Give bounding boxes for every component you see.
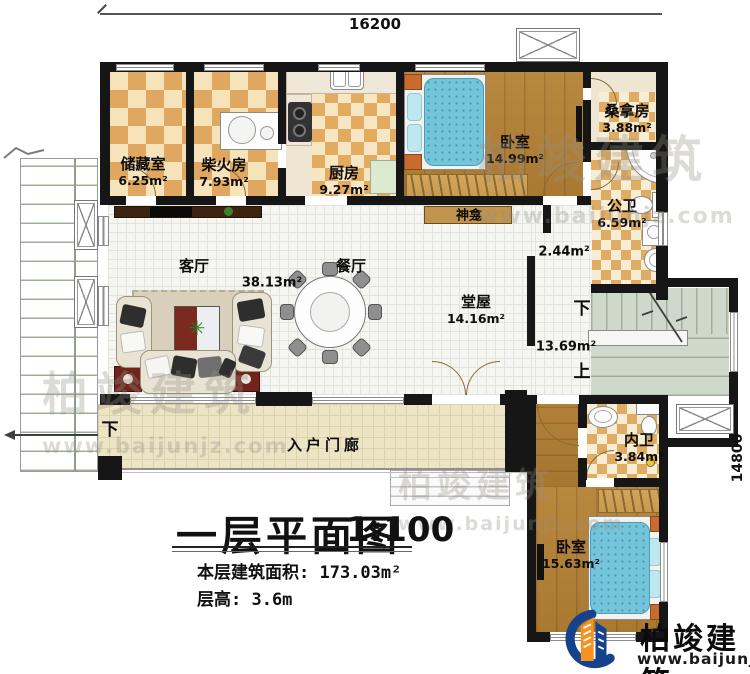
stair-down-label: 下	[574, 299, 591, 319]
stove-burner-2	[293, 124, 306, 137]
title-underline	[172, 546, 412, 548]
porch-arrow-line	[12, 434, 98, 436]
bed-top-pillow-1	[407, 93, 422, 121]
room-label-living: 客厅	[179, 258, 209, 276]
floor-area-line: 本层建筑面积: 173.03m²	[197, 558, 401, 583]
pillow-white-1	[120, 330, 147, 353]
corridor-area-label: 2.44m²	[538, 244, 589, 259]
entry-steps	[390, 470, 510, 506]
floor-height-line: 层高: 3.6m	[197, 585, 292, 610]
side-table-right-top	[241, 374, 251, 384]
wall-segment	[100, 394, 130, 405]
firewood-stove-pot	[228, 116, 256, 144]
stair-up-label: 上	[574, 362, 591, 382]
porch-label: 入户门廊	[287, 437, 363, 455]
room-label-bedroom-top: 卧室14.99m²	[486, 134, 544, 166]
side-table-left-top	[123, 374, 133, 384]
wall-segment	[578, 404, 587, 428]
wall-segment	[583, 100, 591, 162]
wall-segment	[591, 142, 656, 150]
pillow-white-2	[237, 324, 266, 347]
wall-segment	[347, 196, 543, 205]
cushion-2	[170, 355, 197, 379]
dining-chair-e	[368, 304, 382, 320]
chimney-flue-right	[676, 404, 734, 434]
window	[204, 64, 264, 71]
wall-segment	[505, 390, 527, 472]
room-label-firewood: 柴火房7.93m²	[199, 157, 248, 189]
wall-segment	[246, 196, 305, 205]
window	[98, 286, 109, 326]
window	[660, 542, 668, 602]
bed-top-pillow-2	[407, 124, 422, 152]
brand-url: www.baijunjz.com	[637, 650, 750, 668]
chimney-flue-top	[516, 28, 580, 62]
wall-segment	[664, 438, 738, 447]
column-left-2	[74, 276, 98, 328]
top-dimension-label: 16200	[330, 15, 420, 33]
wardrobe-bottom	[598, 489, 668, 513]
wall-segment	[527, 256, 535, 346]
cushion-3	[197, 356, 223, 378]
wall-segment	[656, 62, 668, 212]
wall-segment	[656, 278, 738, 287]
ground-break-mark	[2, 144, 48, 162]
window	[312, 397, 404, 404]
stove-burner-1	[293, 107, 306, 120]
shrine-label: 神龛	[456, 208, 482, 223]
room-label-sauna: 桑拿房3.88m²	[602, 103, 651, 135]
firewood-stove-pot-small	[260, 126, 274, 140]
wall-segment	[578, 478, 586, 487]
floor-plan-page: 16200 14800	[0, 0, 750, 674]
plan-scale: 1:100	[346, 510, 454, 550]
dining-chair-s	[322, 350, 338, 364]
room-label-storage: 储藏室6.25m²	[118, 156, 167, 188]
wall-segment	[404, 394, 432, 405]
room-label-public-bath: 公卫6.59m²	[597, 198, 646, 230]
dining-table-inner	[310, 292, 350, 332]
wall-segment	[583, 72, 591, 88]
title-underline-2	[172, 551, 412, 552]
bed-top-mattress	[424, 78, 484, 166]
window	[130, 397, 256, 404]
wardrobe-top	[406, 174, 528, 198]
stair-area-label: 13.69m²	[536, 339, 596, 354]
bedroom-top-tv	[576, 106, 582, 142]
dining-chair-w	[280, 304, 294, 320]
room-label-dining: 餐厅	[336, 258, 366, 276]
brand-logo-icon	[544, 606, 636, 672]
bed-top-nightstand-1	[404, 74, 422, 90]
wall-segment	[396, 72, 404, 196]
plant-on-table: ✳	[186, 317, 208, 339]
window	[415, 64, 485, 71]
plant-small	[224, 207, 233, 216]
porch-arrow-head	[4, 430, 15, 440]
wall-segment	[543, 205, 551, 233]
window	[730, 312, 738, 372]
wall-segment	[100, 62, 666, 72]
column-left-1	[74, 200, 98, 250]
wall-segment	[527, 404, 536, 640]
bed-top-nightstand-2	[404, 154, 422, 170]
room-label-inner-bath: 内卫3.84m²	[614, 432, 663, 464]
wall-segment	[659, 404, 668, 542]
wall-segment	[98, 456, 122, 480]
wall-segment	[100, 72, 110, 205]
window	[116, 64, 174, 71]
wall-segment	[578, 458, 587, 480]
window	[98, 216, 109, 246]
room-area-living: 38.13m²	[242, 275, 302, 290]
room-label-bedroom-bottom: 卧室15.63m²	[542, 539, 600, 571]
sink-inner-basin	[594, 410, 612, 423]
tv	[150, 207, 192, 217]
window	[658, 212, 668, 246]
wall-segment	[186, 72, 194, 196]
wall-segment	[527, 395, 537, 404]
room-label-kitchen: 厨房9.27m²	[319, 165, 368, 197]
wall-segment	[256, 392, 312, 406]
wall-segment	[278, 72, 286, 144]
porch-edge	[98, 468, 528, 470]
wall-segment	[579, 395, 668, 404]
room-label-hall: 堂屋14.16m²	[447, 294, 505, 326]
wall-segment	[100, 196, 126, 205]
right-dimension-label: 14800	[730, 423, 746, 493]
wall-segment	[156, 196, 216, 205]
porch-edge2	[98, 472, 528, 473]
porch-down-label: 下	[102, 420, 119, 440]
wall-segment	[278, 168, 286, 196]
wall-segment	[577, 196, 591, 205]
wall-segment	[729, 287, 738, 312]
window	[318, 64, 360, 71]
kitchen-fridge	[370, 160, 398, 194]
